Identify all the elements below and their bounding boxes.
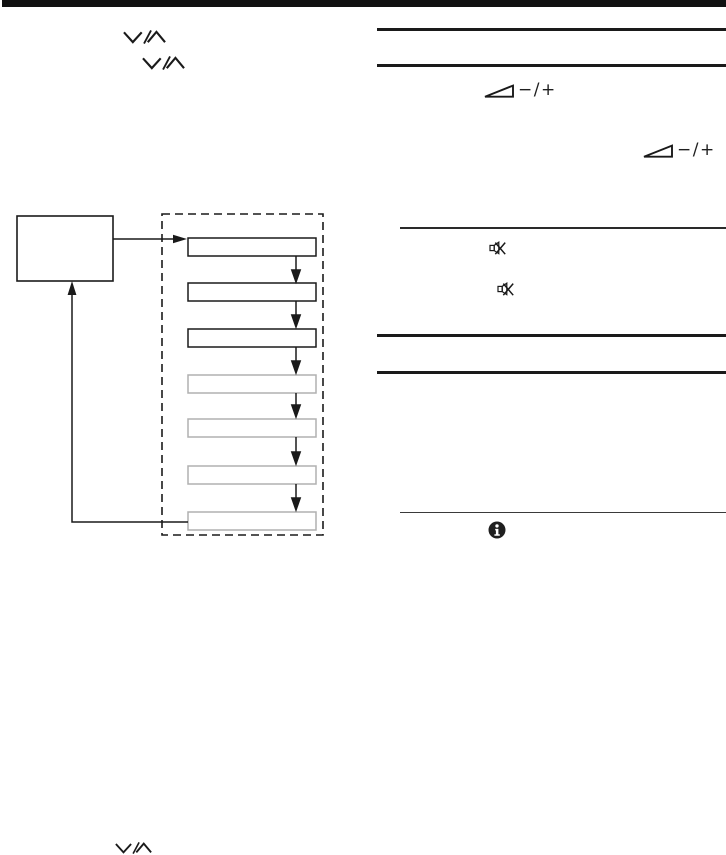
flow-step-1: [188, 238, 316, 256]
flow-loopback-arrowhead: [68, 281, 77, 295]
flow-step-7: [188, 512, 316, 530]
manual-page: −/+ −/+: [0, 0, 726, 855]
channel-up-down-icon: [112, 842, 155, 854]
flow-step-6: [188, 466, 316, 484]
section-rule: [400, 227, 726, 229]
volume-wedge-icon: [643, 144, 673, 158]
flowchart-diagram: [10, 205, 340, 550]
channel-up-down-icon: [141, 56, 186, 70]
flow-step-5: [188, 419, 316, 437]
section-rule: [377, 334, 726, 337]
section-rule: [377, 28, 726, 31]
muting-icon: [497, 281, 514, 297]
section-rule: [400, 512, 726, 513]
header-bar: [2, 0, 726, 7]
flow-step-2: [188, 283, 316, 301]
flow-step-3: [188, 329, 316, 347]
volume-wedge-icon: [484, 84, 514, 98]
section-rule: [377, 371, 726, 374]
channel-up-down-icon: [122, 30, 167, 44]
flow-source-box: [17, 216, 113, 281]
info-icon: [488, 521, 506, 539]
flow-step-4: [188, 375, 316, 393]
section-rule: [377, 64, 726, 67]
volume-adjust-label: −/+: [677, 142, 716, 159]
flow-loopback-line: [72, 294, 188, 522]
volume-adjust-label: −/+: [518, 82, 557, 99]
muting-icon: [489, 240, 506, 256]
flow-entry-arrowhead: [173, 235, 187, 243]
